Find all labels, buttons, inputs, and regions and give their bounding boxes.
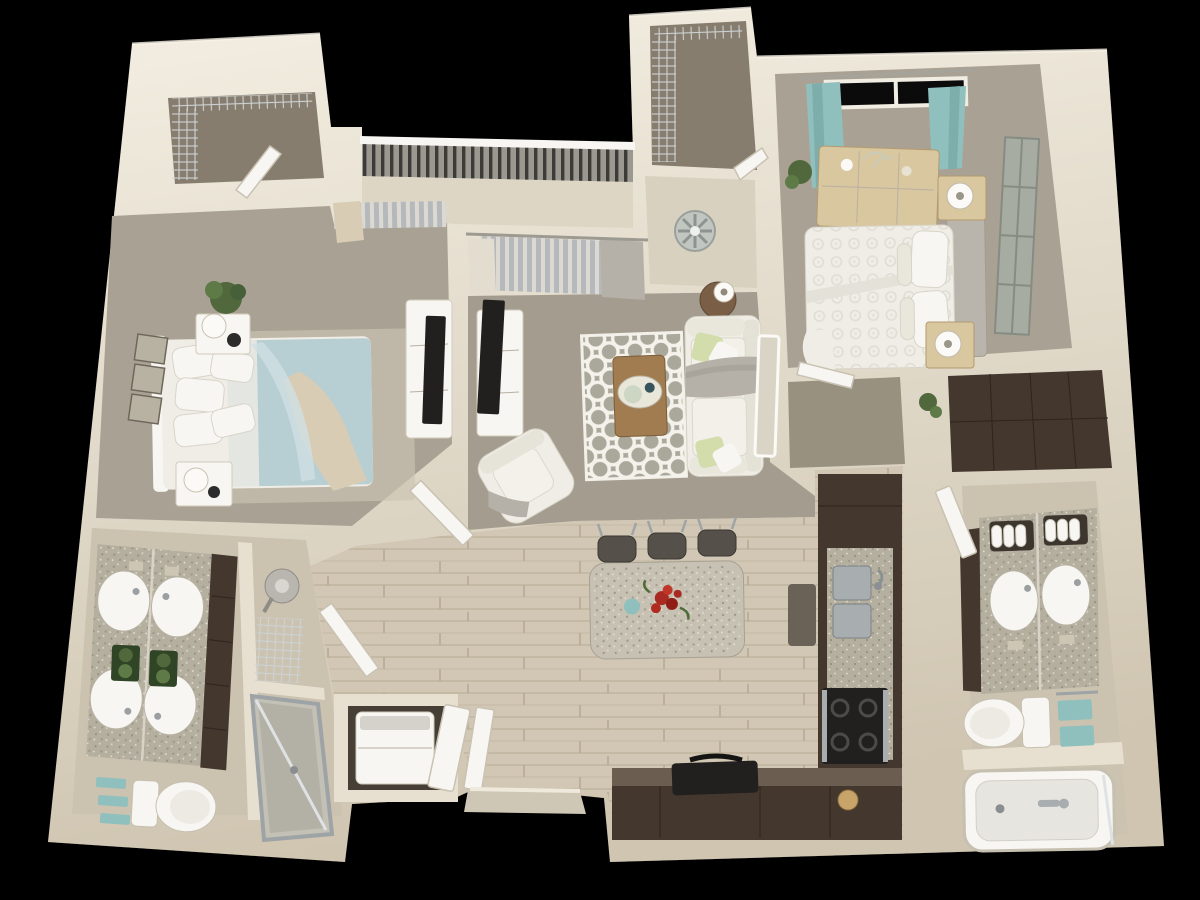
soap-dish xyxy=(129,561,143,570)
hallway-floor xyxy=(788,377,905,468)
floor-plan-svg xyxy=(0,0,1200,900)
bathtub xyxy=(963,769,1114,852)
master-nightstand-top xyxy=(938,176,986,220)
washer-panel xyxy=(360,716,430,730)
bath2-toilet xyxy=(963,697,1051,750)
lamp xyxy=(202,314,226,338)
bolster xyxy=(900,297,915,339)
range-stove xyxy=(822,688,888,764)
bedroom1-tv-console xyxy=(406,300,452,438)
living-curtain-right xyxy=(600,238,645,300)
griddle xyxy=(671,761,758,796)
soap-dish xyxy=(1059,635,1074,645)
clock xyxy=(208,486,220,498)
tub-faucet xyxy=(1038,800,1060,807)
kitchen-mat xyxy=(788,584,816,646)
sofa xyxy=(685,315,766,476)
wire-shelf-left xyxy=(172,108,198,180)
living-tv-console xyxy=(477,300,523,436)
oven-handle xyxy=(883,690,888,762)
master-nightstand-bottom xyxy=(926,322,974,368)
threshold xyxy=(470,789,580,791)
clock xyxy=(227,333,241,347)
side-table xyxy=(700,282,736,318)
bath1-double-vanity xyxy=(86,544,212,766)
coffee-table xyxy=(613,355,668,437)
sofa-arm-top xyxy=(687,318,745,337)
floor-plan-canvas xyxy=(0,0,1200,900)
dresser xyxy=(817,146,940,230)
bath1-shower xyxy=(252,696,332,840)
lamp xyxy=(184,468,208,492)
bath1-teal-towels xyxy=(96,777,131,825)
soap-dish xyxy=(1007,641,1022,651)
balcony xyxy=(360,136,635,182)
bath1-toilet xyxy=(131,779,218,833)
bread-basket xyxy=(838,790,858,810)
kitchen-island xyxy=(589,561,745,660)
fridge-cabinet xyxy=(818,474,902,540)
bedroom1-curtain xyxy=(333,201,364,243)
entry-sill xyxy=(464,790,586,814)
leaning-mirror xyxy=(755,336,779,457)
nightstand-bottom xyxy=(176,462,232,506)
soap-dish xyxy=(165,566,179,575)
bathroom-2 xyxy=(935,486,1124,852)
bolster xyxy=(897,244,912,286)
drain xyxy=(290,766,298,774)
oven-handle xyxy=(822,690,827,762)
bedroom1-tv xyxy=(422,316,446,425)
washer xyxy=(356,712,434,784)
ceiling-fan xyxy=(675,211,715,251)
living-curtain-left xyxy=(468,238,496,294)
laundry-closet xyxy=(334,694,470,802)
wire-shelf-left xyxy=(652,36,676,162)
kitchen-counter-south xyxy=(612,756,902,840)
bath2-vanity xyxy=(957,508,1103,695)
kitchen-counter-east xyxy=(818,540,902,768)
bath1-wire-rack xyxy=(254,617,303,683)
nightstand-top xyxy=(196,314,250,354)
